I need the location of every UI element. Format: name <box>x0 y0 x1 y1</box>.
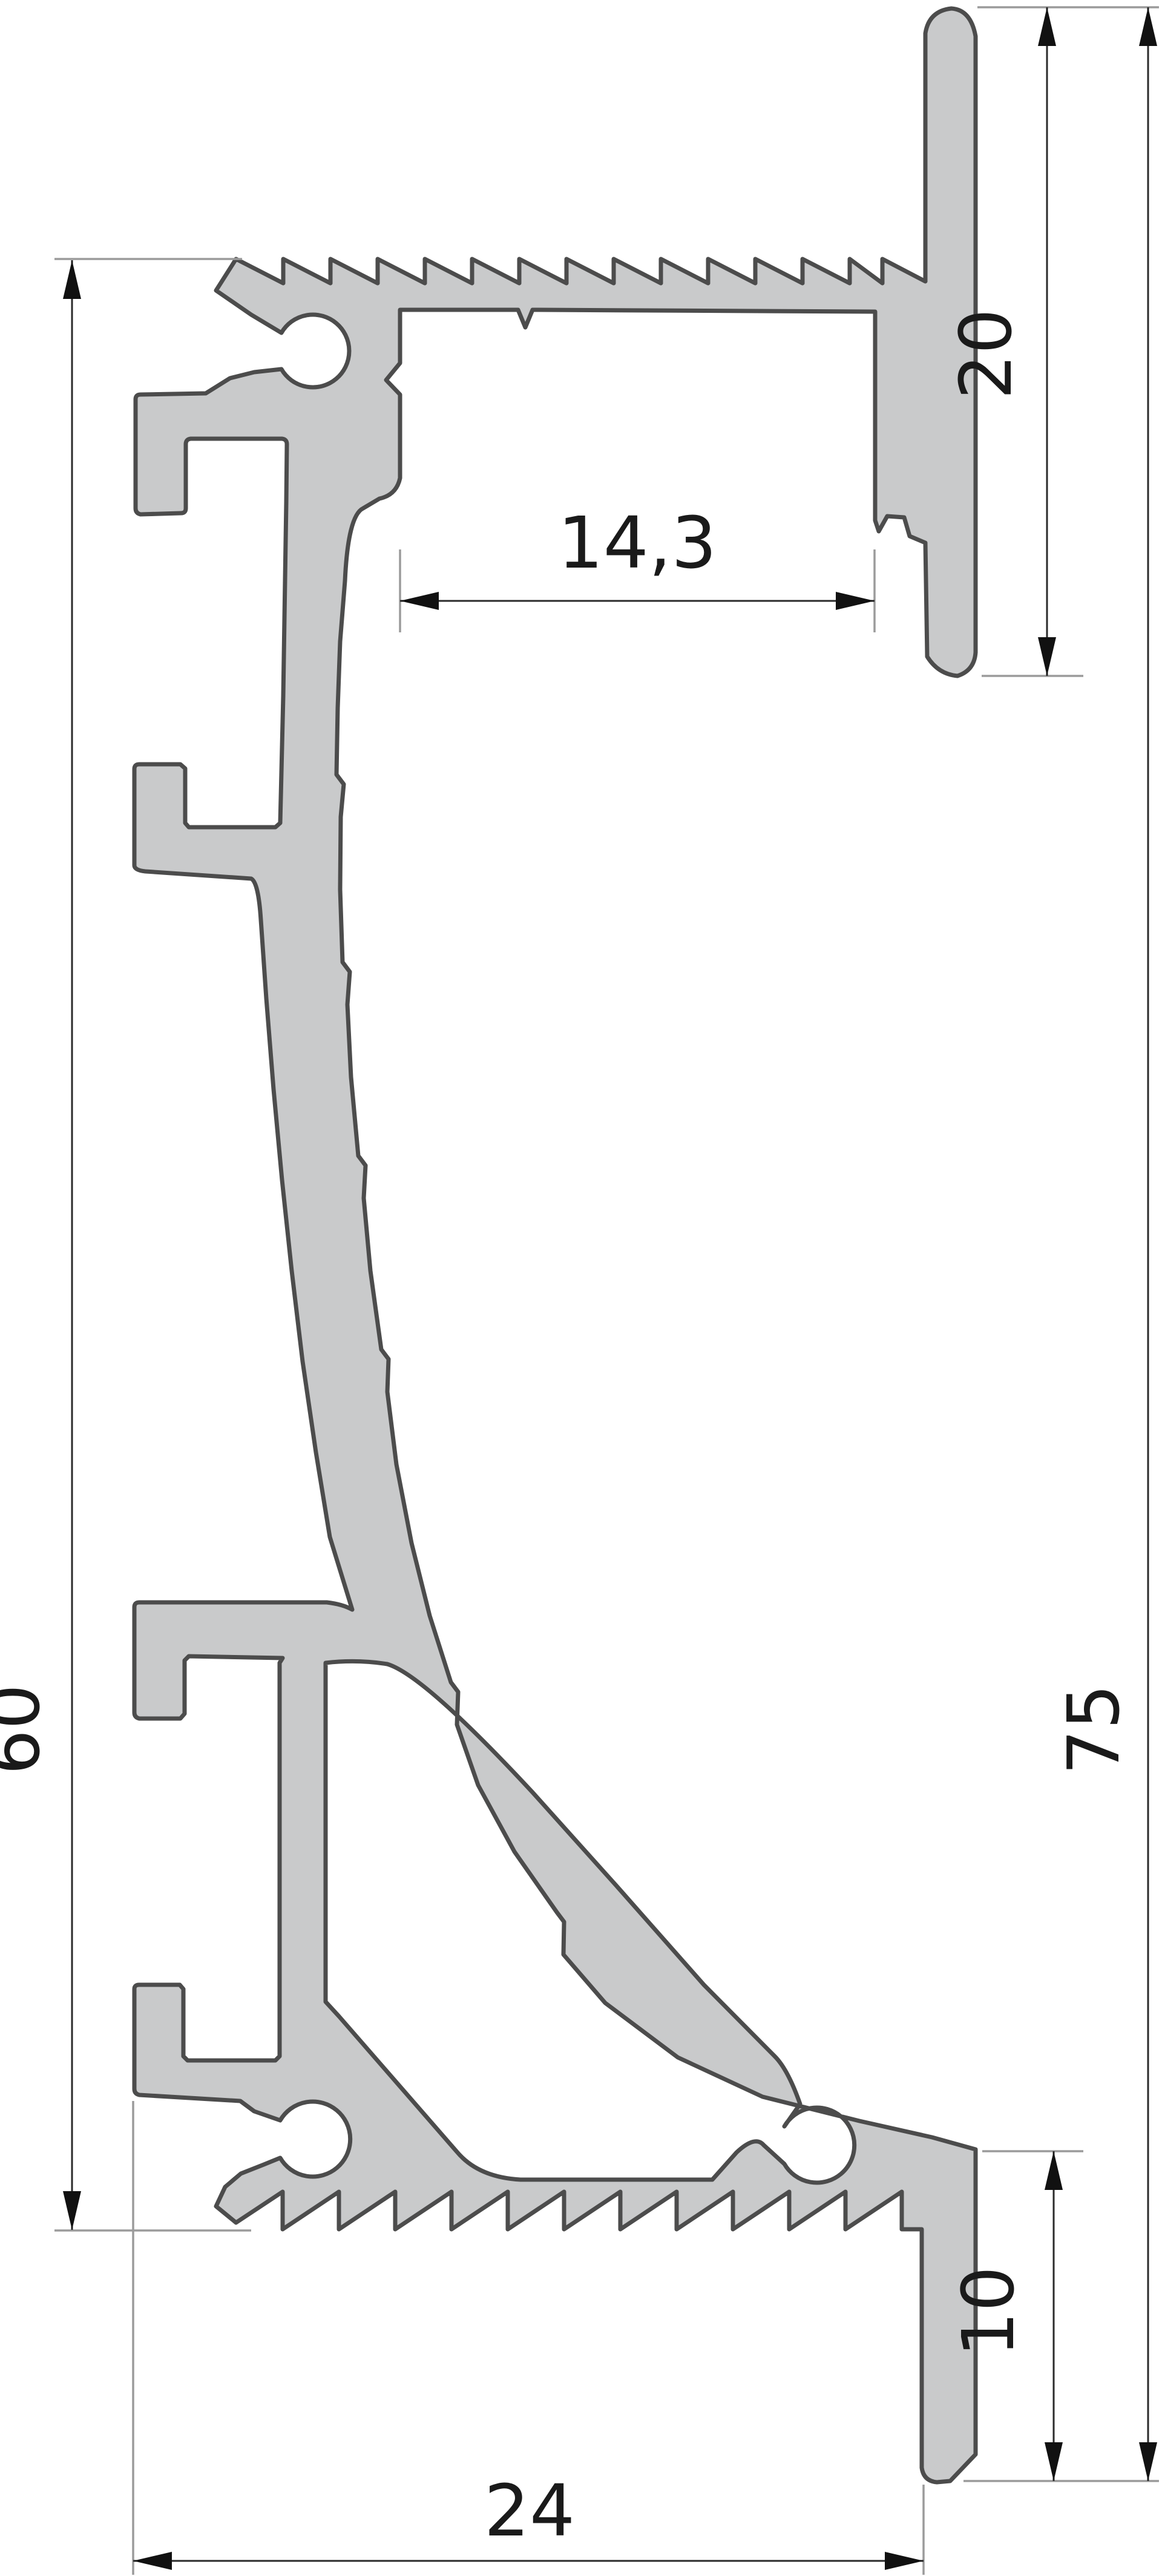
arrowhead-24-left <box>133 2552 172 2570</box>
arrowhead-60-down <box>63 2191 81 2230</box>
arrowhead-10-down <box>1045 2442 1063 2481</box>
dimension-label-75: 75 <box>1052 1684 1135 1775</box>
arrowhead-20-up <box>1038 7 1056 46</box>
arrowhead-10-up <box>1045 2151 1063 2190</box>
dimension-label-20: 20 <box>944 309 1028 399</box>
profile-drawing: 20 75 60 10 14,3 24 <box>0 0 1162 2576</box>
arrowhead-75-up <box>1139 7 1157 46</box>
drawing-canvas: 20 75 60 10 14,3 24 <box>0 0 1162 2576</box>
dimension-label-10: 10 <box>947 2266 1030 2357</box>
arrowhead-143-right <box>836 592 875 610</box>
dimension-label-24: 24 <box>484 2469 575 2552</box>
extrusion-profile-outline <box>134 8 976 2482</box>
dimension-label-60: 60 <box>0 1684 56 1775</box>
arrowhead-24-right <box>885 2552 924 2570</box>
arrowhead-143-left <box>400 592 439 610</box>
arrowhead-75-down <box>1139 2442 1157 2481</box>
arrowhead-60-up <box>63 260 81 299</box>
dimension-label-143: 14,3 <box>558 501 717 585</box>
arrowhead-20-down <box>1038 637 1056 676</box>
